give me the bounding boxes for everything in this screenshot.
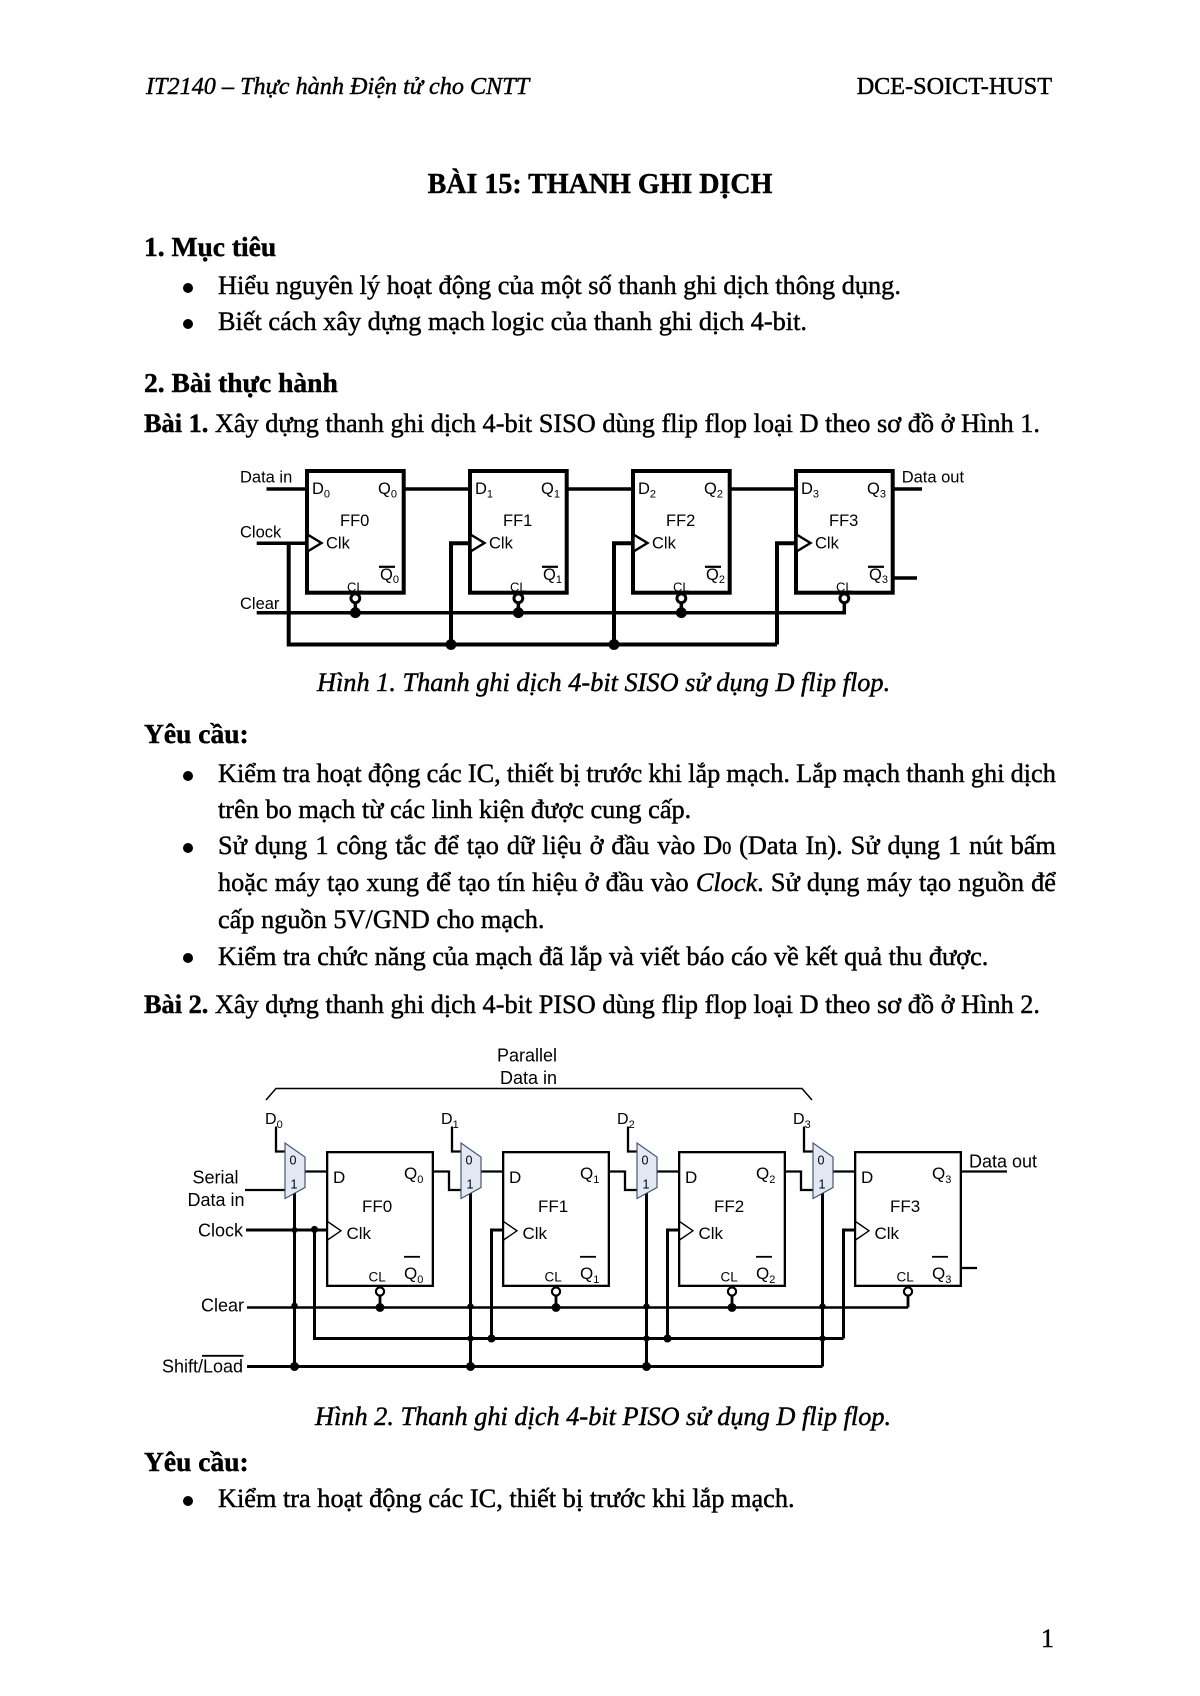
svg-text:1: 1 <box>467 1178 474 1192</box>
svg-text:FF0: FF0 <box>362 1197 392 1216</box>
svg-text:Data in: Data in <box>240 469 292 487</box>
svg-text:D2: D2 <box>638 480 656 501</box>
svg-text:CL: CL <box>721 1270 739 1285</box>
svg-text:Q0: Q0 <box>404 1164 423 1186</box>
svg-text:D1: D1 <box>475 480 493 501</box>
svg-text:Clk: Clk <box>652 535 677 553</box>
svg-text:0: 0 <box>466 1154 473 1168</box>
svg-text:D: D <box>333 1168 345 1187</box>
svg-text:Clk: Clk <box>326 535 351 553</box>
svg-text:Q2: Q2 <box>756 1264 775 1286</box>
svg-text:FF1: FF1 <box>503 512 532 530</box>
svg-text:Serial: Serial <box>193 1168 239 1188</box>
svg-text:0: 0 <box>642 1154 649 1168</box>
svg-text:CL: CL <box>836 580 853 595</box>
svg-text:1: 1 <box>643 1178 650 1192</box>
svg-text:D0: D0 <box>312 480 330 501</box>
svg-text:Clk: Clk <box>523 1224 548 1243</box>
svg-text:CL: CL <box>510 580 527 595</box>
svg-text:Q1: Q1 <box>541 480 560 501</box>
svg-text:CL: CL <box>897 1270 915 1285</box>
svg-text:Q3: Q3 <box>867 480 886 501</box>
svg-text:D3: D3 <box>801 480 819 501</box>
svg-text:Q3: Q3 <box>932 1264 951 1286</box>
svg-text:Q3: Q3 <box>869 566 888 586</box>
svg-text:0: 0 <box>818 1154 825 1168</box>
svg-text:FF1: FF1 <box>538 1197 568 1216</box>
svg-text:Shift/Load: Shift/Load <box>162 1357 243 1377</box>
svg-text:Parallel: Parallel <box>497 1046 557 1066</box>
svg-text:Data out: Data out <box>902 469 965 487</box>
svg-text:Q0: Q0 <box>380 566 399 586</box>
svg-text:CL: CL <box>347 580 364 595</box>
svg-text:FF3: FF3 <box>829 512 858 530</box>
svg-text:FF2: FF2 <box>714 1197 744 1216</box>
svg-text:CL: CL <box>673 580 690 595</box>
svg-text:CL: CL <box>545 1270 563 1285</box>
svg-text:Q2: Q2 <box>704 480 723 501</box>
svg-text:Clk: Clk <box>489 535 514 553</box>
svg-text:D: D <box>861 1168 873 1187</box>
svg-text:Q1: Q1 <box>580 1264 599 1286</box>
svg-text:FF3: FF3 <box>890 1197 920 1216</box>
svg-text:Data in: Data in <box>500 1068 557 1088</box>
svg-text:Clear: Clear <box>201 1296 244 1316</box>
svg-text:FF2: FF2 <box>666 512 695 530</box>
svg-text:Q0: Q0 <box>378 480 397 501</box>
svg-text:D2: D2 <box>617 1111 635 1131</box>
svg-text:FF0: FF0 <box>340 512 369 530</box>
svg-text:Data out: Data out <box>969 1152 1037 1172</box>
svg-text:Clock: Clock <box>198 1221 244 1241</box>
svg-text:D3: D3 <box>793 1111 811 1131</box>
svg-text:1: 1 <box>291 1178 298 1192</box>
svg-text:D0: D0 <box>265 1111 283 1131</box>
svg-text:Q3: Q3 <box>932 1164 951 1186</box>
svg-text:Clk: Clk <box>875 1224 900 1243</box>
svg-text:1: 1 <box>819 1178 826 1192</box>
svg-text:Q1: Q1 <box>543 566 562 586</box>
svg-text:Clear: Clear <box>240 595 280 613</box>
svg-text:D1: D1 <box>441 1111 459 1131</box>
svg-text:Q2: Q2 <box>706 566 725 586</box>
svg-text:Q2: Q2 <box>756 1164 775 1186</box>
svg-text:Clock: Clock <box>240 524 282 542</box>
svg-text:CL: CL <box>369 1270 387 1285</box>
svg-text:Clk: Clk <box>347 1224 372 1243</box>
svg-text:Data in: Data in <box>188 1190 245 1210</box>
svg-text:Clk: Clk <box>815 535 840 553</box>
svg-text:Clk: Clk <box>699 1224 724 1243</box>
svg-text:D: D <box>509 1168 521 1187</box>
svg-text:D: D <box>685 1168 697 1187</box>
svg-text:Q0: Q0 <box>404 1264 423 1286</box>
svg-text:0: 0 <box>290 1154 297 1168</box>
svg-text:Q1: Q1 <box>580 1164 599 1186</box>
